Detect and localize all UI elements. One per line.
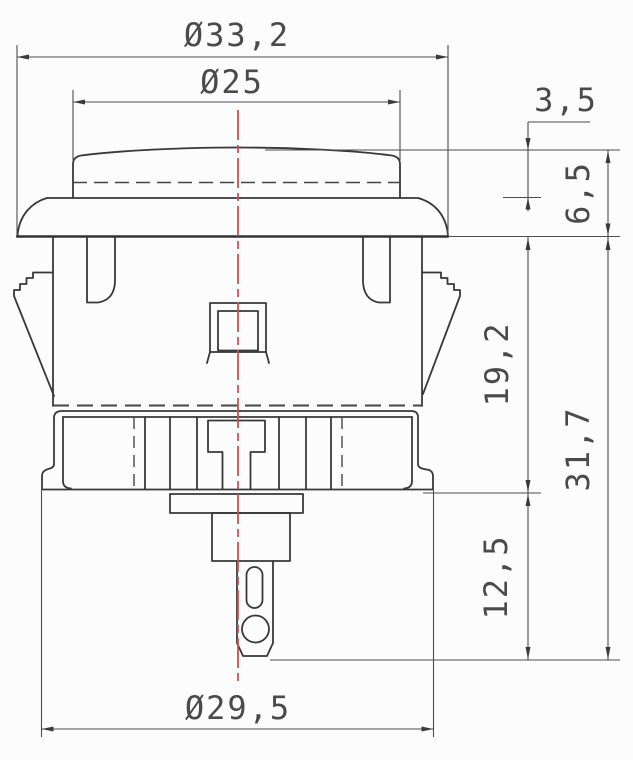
plunger-dome: [73, 148, 400, 199]
flange-right-curve: [418, 198, 448, 236]
terminal-slot: [247, 567, 263, 608]
part-outline: [14, 148, 460, 657]
label-cap-height: 6,5: [559, 161, 597, 225]
terminal-block: [212, 513, 290, 561]
label-terminal-depth: 12,5: [477, 534, 515, 619]
label-overall-depth: 31,7: [559, 406, 597, 491]
technical-drawing-canvas: Ø33,2 Ø25 3,5 6,5 19,2 31,7 12,5 Ø29,5: [0, 0, 633, 760]
dimension-arrowheads: [17, 55, 611, 732]
button-dimension-drawing: Ø33,2 Ø25 3,5 6,5 19,2 31,7 12,5 Ø29,5: [0, 0, 633, 760]
guide-channel: [208, 421, 265, 490]
left-hook-slot: [87, 238, 115, 303]
skirt-inner-right: [404, 417, 412, 489]
left-snap-wing: [14, 273, 54, 397]
label-flange-diameter: Ø33,2: [184, 16, 290, 54]
label-body-depth: 19,2: [478, 321, 516, 406]
right-snap-wing: [422, 273, 460, 395]
switch-base-plate: [170, 494, 303, 513]
label-plunger-diameter: Ø25: [200, 63, 264, 101]
terminal-hole: [242, 616, 269, 643]
right-hook-slot: [363, 238, 390, 303]
label-plunger-protrusion: 3,5: [534, 81, 598, 119]
flange-left-curve: [18, 198, 48, 236]
label-body-diameter: Ø29,5: [185, 689, 291, 727]
skirt-inner-left: [63, 417, 71, 489]
